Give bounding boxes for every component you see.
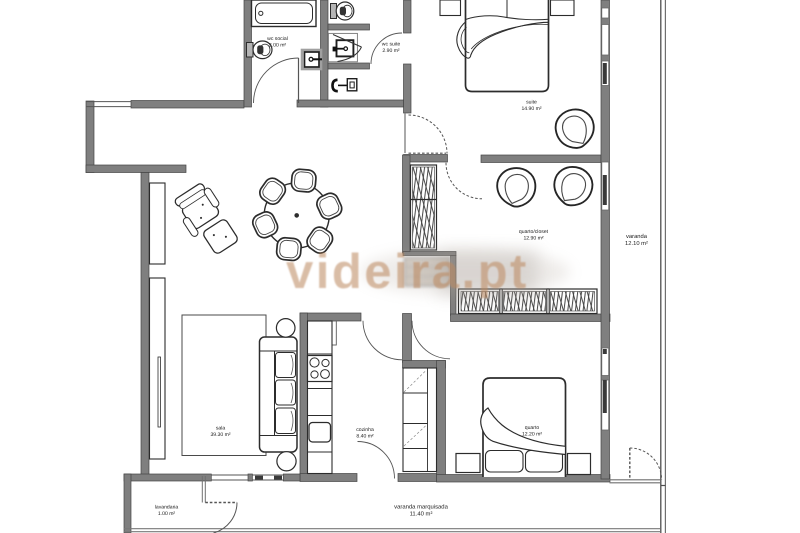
svg-text:12.20 m²: 12.20 m² — [522, 432, 542, 438]
svg-text:cozinha: cozinha — [356, 427, 374, 433]
svg-text:2.90 m²: 2.90 m² — [382, 48, 400, 54]
svg-text:quarto/closet: quarto/closet — [519, 229, 549, 235]
svg-text:varanda: varanda — [626, 233, 648, 240]
svg-text:varanda marquisada: varanda marquisada — [394, 504, 448, 511]
svg-text:14.90 m²: 14.90 m² — [521, 106, 541, 112]
svg-text:1.00 m²: 1.00 m² — [158, 511, 176, 517]
svg-text:sala: sala — [216, 426, 226, 432]
svg-text:quarto: quarto — [525, 425, 540, 431]
svg-text:wc suite: wc suite — [382, 42, 401, 48]
svg-text:lavandaria: lavandaria — [155, 505, 179, 511]
svg-text:videira.pt: videira.pt — [286, 245, 529, 299]
svg-text:8.40 m²: 8.40 m² — [356, 434, 374, 440]
svg-text:wc social: wc social — [267, 36, 288, 42]
svg-text:11.40 m²: 11.40 m² — [410, 511, 433, 518]
svg-text:suite: suite — [526, 100, 537, 106]
svg-text:3.00 m²: 3.00 m² — [269, 43, 287, 49]
svg-text:12.90 m²: 12.90 m² — [523, 236, 543, 242]
svg-text:39.30 m²: 39.30 m² — [210, 432, 230, 438]
svg-text:12.10 m²: 12.10 m² — [625, 240, 648, 247]
